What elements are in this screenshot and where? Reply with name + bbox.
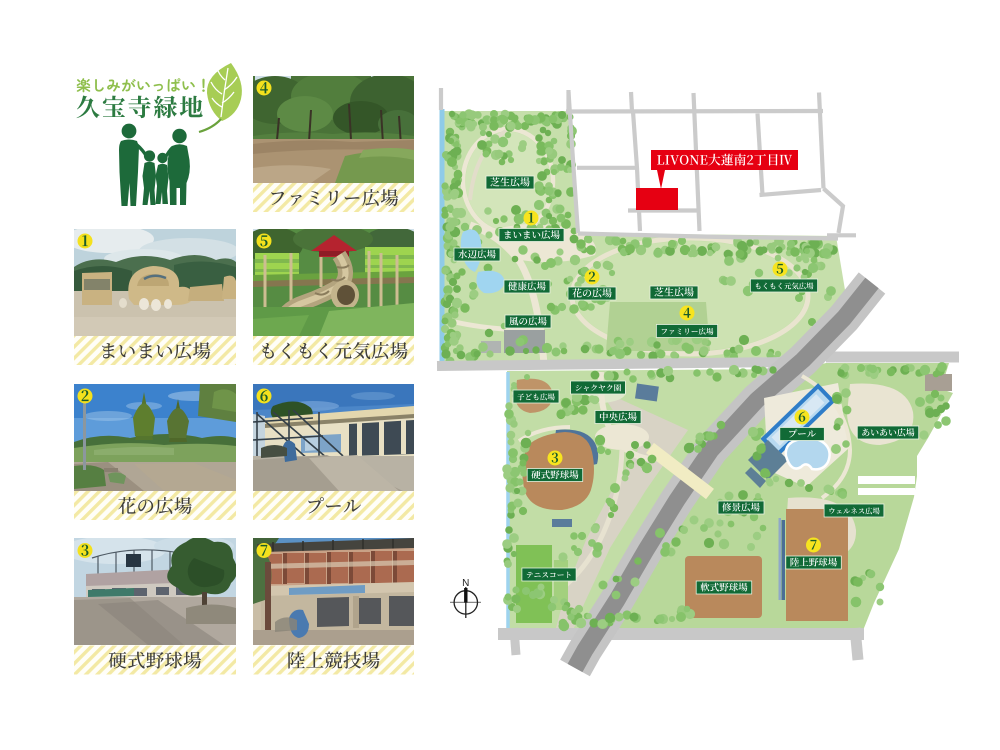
svg-text:N: N (462, 578, 469, 589)
